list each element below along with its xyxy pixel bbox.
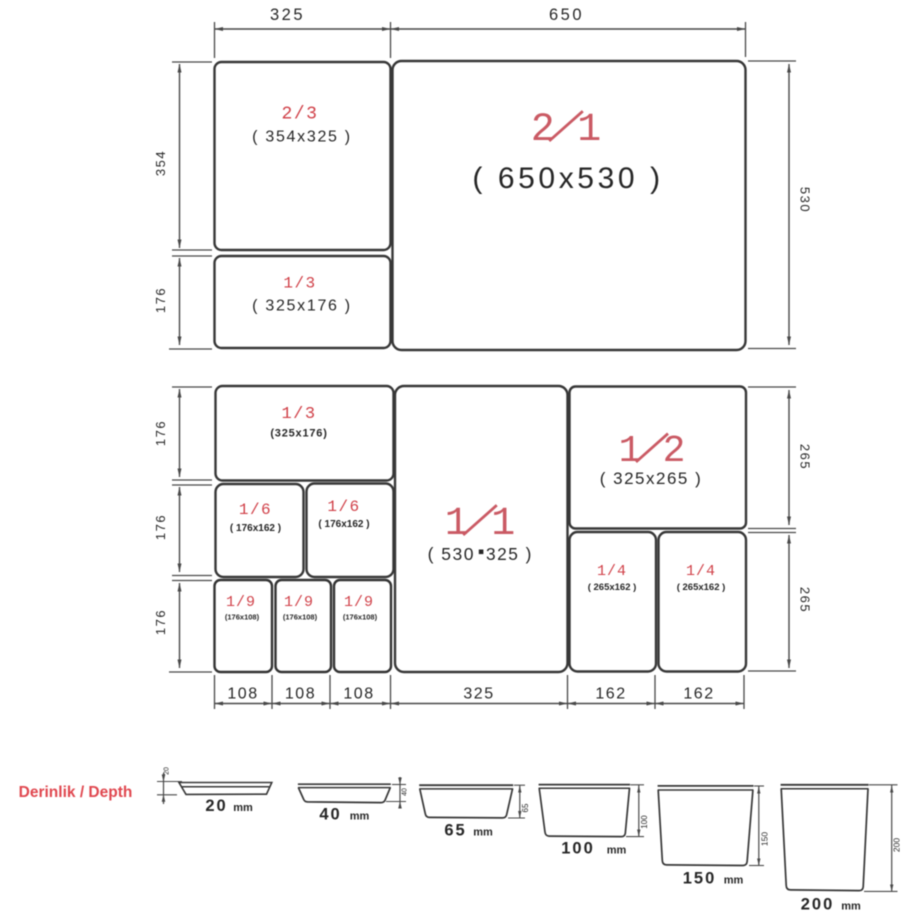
- svg-text:mm: mm: [473, 827, 493, 839]
- svg-text:40: 40: [319, 806, 341, 824]
- svg-text:( 650x530 ): ( 650x530 ): [472, 162, 663, 195]
- svg-text:100: 100: [640, 815, 649, 829]
- svg-text:mm: mm: [350, 811, 370, 823]
- svg-text:1/9: 1/9: [284, 594, 314, 611]
- svg-text:325: 325: [270, 6, 305, 24]
- svg-text:( 354x325 ): ( 354x325 ): [252, 129, 352, 146]
- svg-text:65: 65: [521, 803, 530, 812]
- svg-text:2: 2: [531, 108, 555, 153]
- svg-text:1/6: 1/6: [327, 498, 360, 516]
- svg-text:40: 40: [402, 788, 409, 796]
- svg-text:1/9: 1/9: [344, 594, 374, 611]
- svg-text:176: 176: [153, 420, 168, 446]
- svg-text:( 176x162 ): ( 176x162 ): [318, 519, 369, 530]
- svg-text:1/3: 1/3: [281, 405, 316, 424]
- svg-text:20: 20: [164, 767, 171, 775]
- svg-text:1/9: 1/9: [226, 594, 256, 611]
- svg-text:2/3: 2/3: [282, 105, 319, 125]
- svg-text:20: 20: [205, 797, 227, 815]
- svg-text:1: 1: [619, 430, 642, 473]
- svg-text:650: 650: [549, 6, 584, 24]
- svg-text:265: 265: [798, 587, 813, 613]
- svg-text:( 265x162 ): ( 265x162 ): [677, 582, 726, 593]
- svg-text:Derinlik / Depth: Derinlik / Depth: [19, 784, 133, 801]
- svg-text:150: 150: [683, 870, 717, 888]
- svg-text:(325x176): (325x176): [270, 428, 327, 440]
- svg-text:( 176x162 ): ( 176x162 ): [230, 523, 281, 534]
- svg-text:1/3: 1/3: [283, 275, 316, 293]
- svg-text:( 530: ( 530: [428, 544, 475, 564]
- svg-text:1/6: 1/6: [239, 501, 272, 519]
- svg-text:( 325x265 ): ( 325x265 ): [600, 469, 703, 488]
- svg-text:mm: mm: [233, 802, 253, 814]
- svg-text:(176x108): (176x108): [343, 613, 378, 622]
- svg-text:108: 108: [227, 686, 258, 703]
- svg-text:200: 200: [801, 896, 835, 914]
- svg-text:354: 354: [153, 150, 168, 176]
- svg-text:1/4: 1/4: [597, 563, 627, 580]
- svg-text:( 325x176 ): ( 325x176 ): [252, 298, 352, 315]
- svg-text:( 265x162 ): ( 265x162 ): [588, 582, 637, 593]
- svg-text:108: 108: [285, 686, 316, 703]
- svg-text:176: 176: [153, 514, 168, 540]
- svg-text:325 ): 325 ): [486, 544, 533, 564]
- svg-text:176: 176: [153, 287, 168, 313]
- svg-text:(176x108): (176x108): [283, 613, 318, 622]
- svg-text:mm: mm: [724, 875, 744, 887]
- svg-text:265: 265: [798, 444, 813, 470]
- svg-text:325: 325: [463, 686, 494, 703]
- svg-text:(176x108): (176x108): [225, 613, 260, 622]
- svg-text:1/4: 1/4: [686, 563, 716, 580]
- svg-text:530: 530: [798, 187, 813, 213]
- svg-text:1: 1: [445, 502, 469, 547]
- svg-text:162: 162: [683, 686, 714, 703]
- svg-text:150: 150: [760, 832, 770, 846]
- svg-text:65: 65: [444, 822, 466, 840]
- svg-text:176: 176: [153, 609, 168, 635]
- svg-text:100: 100: [561, 840, 595, 858]
- svg-text:200: 200: [892, 838, 902, 852]
- svg-text:162: 162: [595, 686, 626, 703]
- svg-text:mm: mm: [841, 901, 861, 913]
- svg-text:108: 108: [343, 686, 374, 703]
- svg-text:mm: mm: [607, 845, 627, 857]
